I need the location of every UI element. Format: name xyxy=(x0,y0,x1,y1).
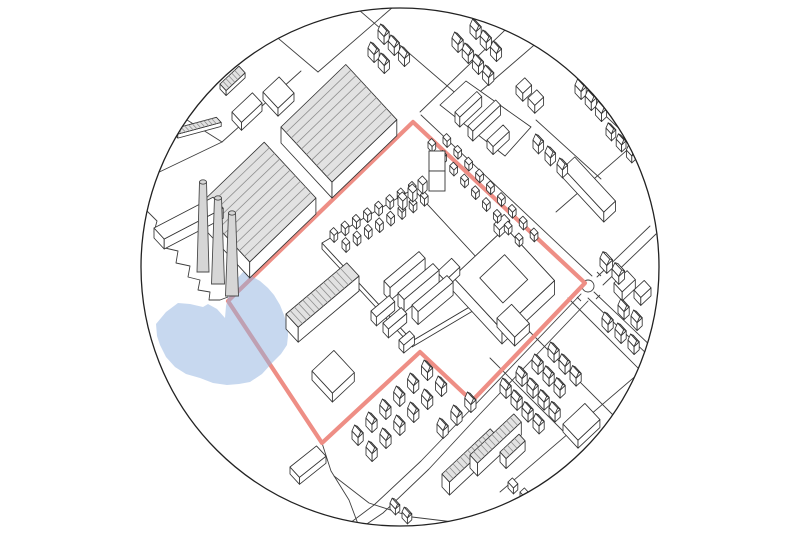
face-se xyxy=(646,141,650,152)
house xyxy=(500,378,511,399)
house xyxy=(527,378,538,399)
chimney xyxy=(197,180,209,272)
tl-bar xyxy=(232,93,262,131)
roof-plane xyxy=(556,27,565,35)
roof-top xyxy=(644,113,654,123)
house xyxy=(508,204,516,218)
house xyxy=(368,42,379,63)
house xyxy=(557,158,568,178)
house xyxy=(380,428,391,449)
face-se xyxy=(618,97,623,110)
house xyxy=(600,252,613,274)
far-bottom-pair xyxy=(508,478,530,504)
house xyxy=(493,209,501,223)
house xyxy=(465,392,476,413)
south-row-3 xyxy=(437,392,476,439)
roof-top xyxy=(611,90,622,101)
face-sw xyxy=(601,84,607,99)
wedge-line-2 xyxy=(151,142,222,176)
top-row-2 xyxy=(368,42,389,74)
roof-plane xyxy=(646,112,654,119)
roof-plane xyxy=(620,112,628,123)
roof-top xyxy=(640,135,650,145)
roof-plane xyxy=(553,27,562,40)
house xyxy=(437,418,448,439)
house xyxy=(519,216,527,230)
house xyxy=(472,186,480,200)
face-sw xyxy=(620,117,625,130)
school-se-row xyxy=(533,134,568,178)
house xyxy=(553,27,564,48)
house xyxy=(480,30,491,51)
house xyxy=(490,41,501,62)
roof-plane xyxy=(604,78,613,86)
chimney-shaft xyxy=(197,182,209,272)
rab-east-row xyxy=(600,252,625,285)
roof-plane xyxy=(634,101,642,112)
face-sw xyxy=(553,33,559,48)
house xyxy=(585,90,596,111)
roof-plane xyxy=(630,123,638,134)
face-sw xyxy=(540,22,546,37)
roof-top xyxy=(553,28,564,39)
roof-plane xyxy=(636,101,644,108)
house xyxy=(398,46,409,67)
face-sw xyxy=(640,139,645,152)
house xyxy=(472,54,483,75)
bottom-pair xyxy=(390,498,412,524)
house xyxy=(483,65,494,86)
house xyxy=(461,174,469,188)
tl-courtyard-house xyxy=(263,77,294,116)
face-sw xyxy=(630,128,635,141)
roof-top xyxy=(630,124,640,134)
site-square-box xyxy=(312,350,354,402)
house xyxy=(388,35,399,56)
face-se xyxy=(607,86,612,99)
house xyxy=(378,24,389,45)
house xyxy=(408,373,419,394)
sawtooth-annex xyxy=(286,263,359,342)
house xyxy=(602,312,613,333)
topright-pair xyxy=(540,16,564,48)
roof-top xyxy=(601,79,612,90)
chimney-cap xyxy=(215,196,222,200)
roof-plane xyxy=(643,134,651,141)
house xyxy=(611,89,622,110)
right-dense-3 xyxy=(634,101,654,130)
face-sw xyxy=(644,117,649,130)
house xyxy=(483,198,491,212)
roof-plane xyxy=(540,16,549,29)
house xyxy=(408,402,419,423)
face-se xyxy=(625,119,629,130)
roof-top xyxy=(591,68,602,79)
house xyxy=(628,334,639,355)
planning-rectangles xyxy=(429,151,445,191)
house xyxy=(418,176,427,194)
roof-top xyxy=(540,17,551,28)
factory-hall-north xyxy=(281,65,397,199)
house xyxy=(380,399,391,420)
sw-flat-slab xyxy=(290,446,326,484)
roof-plane xyxy=(601,78,610,91)
house xyxy=(626,145,636,163)
house xyxy=(443,134,451,148)
tl-small-sawtooth xyxy=(220,66,245,95)
house xyxy=(631,310,642,331)
face-se xyxy=(639,108,643,119)
roundabout-dash xyxy=(577,297,581,301)
br-big-box xyxy=(563,403,600,448)
house xyxy=(402,507,412,524)
house xyxy=(532,354,543,375)
roof-top xyxy=(620,113,630,123)
street-top-6 xyxy=(240,6,318,72)
house xyxy=(570,366,581,387)
rab-east-big-2 xyxy=(634,280,651,305)
face-se xyxy=(525,494,529,504)
house xyxy=(390,498,400,515)
face-se xyxy=(650,119,654,130)
roof-plane xyxy=(640,134,648,145)
site-plan-figure xyxy=(0,0,800,535)
house xyxy=(543,366,554,387)
roof-plane xyxy=(614,89,623,97)
house xyxy=(616,134,626,152)
house xyxy=(615,323,626,344)
house xyxy=(620,112,630,130)
house xyxy=(511,390,522,411)
right-cluster-1 xyxy=(575,79,607,122)
house xyxy=(591,67,602,88)
chimney-cap xyxy=(229,211,236,215)
roof-top xyxy=(634,102,644,112)
house xyxy=(540,16,551,37)
house xyxy=(352,425,363,446)
house xyxy=(644,112,654,130)
house xyxy=(454,145,462,159)
roof-plane xyxy=(622,112,630,119)
house xyxy=(530,228,538,242)
house xyxy=(462,43,473,64)
house xyxy=(630,123,640,141)
house xyxy=(522,402,533,423)
house xyxy=(378,53,389,74)
chimney-cap xyxy=(200,180,207,184)
roof-plane xyxy=(611,89,620,102)
planning-rect-2 xyxy=(429,171,445,191)
house xyxy=(470,19,481,40)
face-se xyxy=(546,24,551,37)
house xyxy=(554,378,565,399)
roof-plane xyxy=(594,67,603,75)
axonometric-site-diagram xyxy=(0,0,800,535)
house xyxy=(601,78,612,99)
right-dense-1 xyxy=(606,123,636,163)
house xyxy=(548,342,559,363)
dock-strip xyxy=(173,117,221,138)
house xyxy=(452,32,463,53)
house xyxy=(508,478,518,494)
face-se xyxy=(636,130,640,141)
house xyxy=(559,354,570,375)
house xyxy=(545,146,556,166)
house xyxy=(366,441,377,462)
face-sw xyxy=(611,95,617,110)
house xyxy=(394,386,405,407)
face-se xyxy=(597,75,602,88)
house xyxy=(533,134,544,154)
roof-plane xyxy=(543,16,552,24)
house xyxy=(533,413,544,434)
house xyxy=(366,412,377,433)
face-sw xyxy=(634,106,639,119)
roof-plane xyxy=(632,123,640,130)
house xyxy=(516,366,527,387)
planning-rect-1 xyxy=(429,151,445,171)
roof-plane xyxy=(644,112,652,123)
house xyxy=(422,389,433,410)
house xyxy=(606,123,616,141)
face-sw xyxy=(591,73,597,88)
face-se xyxy=(559,35,564,48)
house xyxy=(634,101,644,119)
house xyxy=(640,134,650,152)
roof-plane xyxy=(591,67,600,80)
road-main-sw-1 xyxy=(342,294,581,529)
house xyxy=(394,415,405,436)
house xyxy=(451,405,462,426)
house xyxy=(436,376,447,397)
